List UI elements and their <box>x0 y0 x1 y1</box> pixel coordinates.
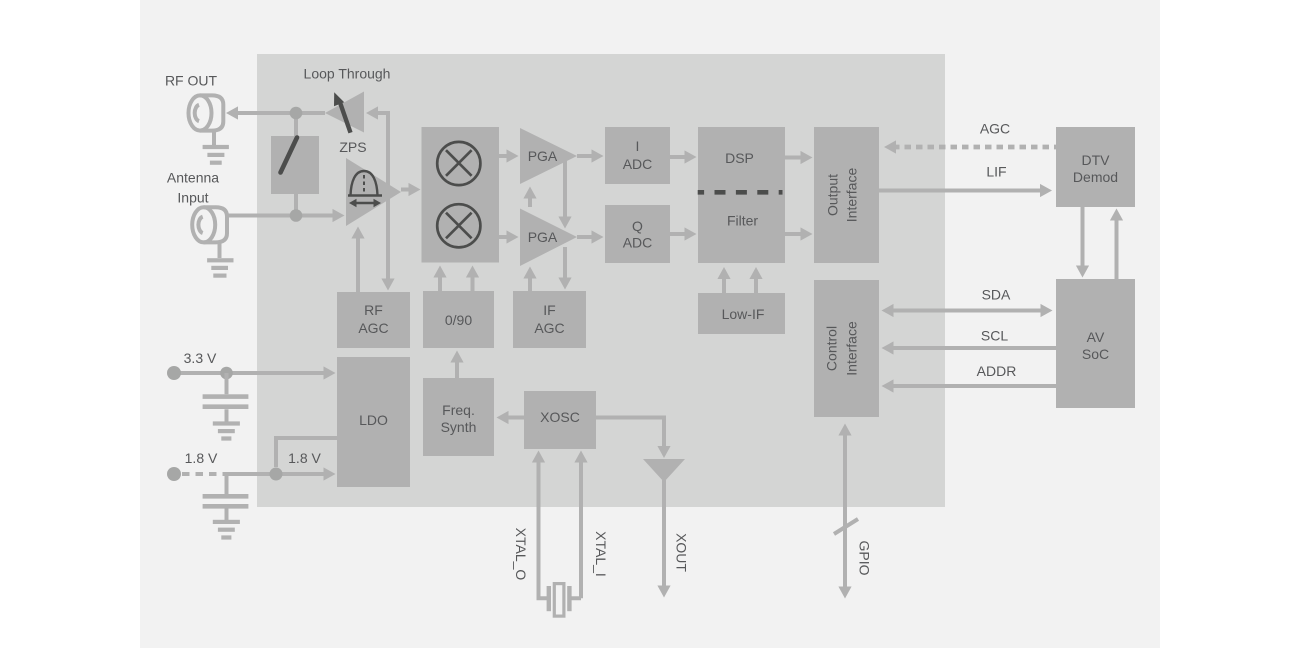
svg-text:LIF: LIF <box>986 164 1006 180</box>
svg-text:ADC: ADC <box>623 235 653 251</box>
svg-text:3.3 V: 3.3 V <box>184 350 217 366</box>
svg-text:AGC: AGC <box>534 320 564 336</box>
svg-text:PGA: PGA <box>528 229 558 245</box>
svg-text:GPIO: GPIO <box>857 540 873 575</box>
svg-text:SCL: SCL <box>981 328 1008 344</box>
svg-text:AGC: AGC <box>358 320 388 336</box>
svg-text:XTAL_I: XTAL_I <box>593 531 609 577</box>
svg-text:ZPS: ZPS <box>339 139 366 155</box>
svg-text:Loop Through: Loop Through <box>304 66 391 82</box>
svg-text:PGA: PGA <box>528 148 558 164</box>
svg-text:Synth: Synth <box>441 419 477 435</box>
svg-text:AV: AV <box>1087 329 1105 345</box>
svg-text:XTAL_O: XTAL_O <box>513 528 529 581</box>
svg-text:Demod: Demod <box>1073 169 1118 185</box>
svg-text:RF OUT: RF OUT <box>165 73 218 89</box>
svg-text:XOUT: XOUT <box>674 533 690 572</box>
svg-text:0/90: 0/90 <box>445 312 472 328</box>
svg-text:Low-IF: Low-IF <box>722 306 765 322</box>
svg-text:Antenna: Antenna <box>167 170 219 186</box>
svg-text:RF: RF <box>364 302 383 318</box>
svg-text:SoC: SoC <box>1082 346 1109 362</box>
svg-text:1.8 V: 1.8 V <box>288 450 321 466</box>
svg-text:AGC: AGC <box>980 121 1010 137</box>
svg-text:ADDR: ADDR <box>977 363 1017 379</box>
svg-text:Input: Input <box>177 190 208 206</box>
svg-text:LDO: LDO <box>359 412 388 428</box>
svg-text:ADC: ADC <box>623 156 653 172</box>
svg-text:Freq.: Freq. <box>442 402 475 418</box>
svg-text:Q: Q <box>632 218 643 234</box>
svg-text:DTV: DTV <box>1082 152 1111 168</box>
svg-text:Filter: Filter <box>727 213 758 229</box>
svg-text:IF: IF <box>543 302 555 318</box>
svg-text:SDA: SDA <box>982 287 1011 303</box>
svg-text:1.8 V: 1.8 V <box>185 450 218 466</box>
svg-text:I: I <box>636 138 640 154</box>
svg-text:DSP: DSP <box>725 150 754 166</box>
svg-text:XOSC: XOSC <box>540 409 580 425</box>
